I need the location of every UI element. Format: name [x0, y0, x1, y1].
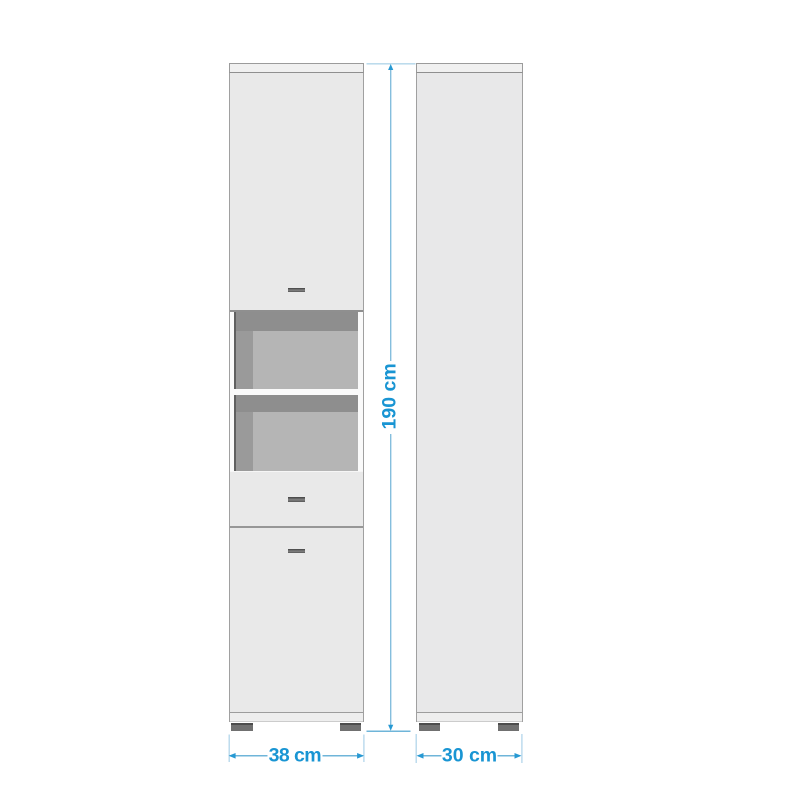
svg-text:190 cm: 190 cm — [378, 363, 400, 429]
svg-text:38 cm: 38 cm — [269, 745, 322, 767]
svg-text:30 cm: 30 cm — [442, 745, 497, 767]
